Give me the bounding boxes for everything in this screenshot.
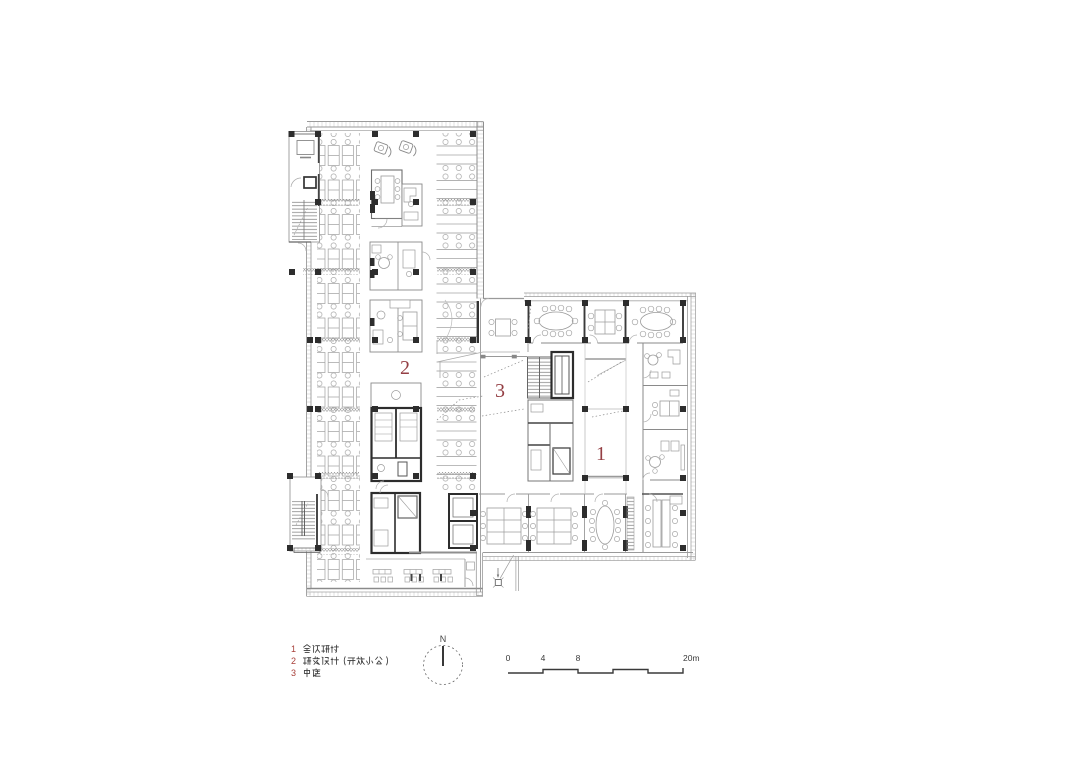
svg-text:2: 2 — [291, 656, 296, 666]
svg-text:1: 1 — [596, 443, 606, 465]
svg-text:1: 1 — [291, 644, 296, 654]
svg-text:3: 3 — [495, 380, 505, 402]
svg-text:20m: 20m — [683, 653, 700, 663]
svg-text:8: 8 — [576, 653, 581, 663]
svg-text:2: 2 — [400, 357, 410, 379]
svg-text:N: N — [440, 634, 447, 644]
svg-text:3: 3 — [291, 668, 296, 678]
svg-text:0: 0 — [506, 653, 511, 663]
svg-text:4: 4 — [541, 653, 546, 663]
